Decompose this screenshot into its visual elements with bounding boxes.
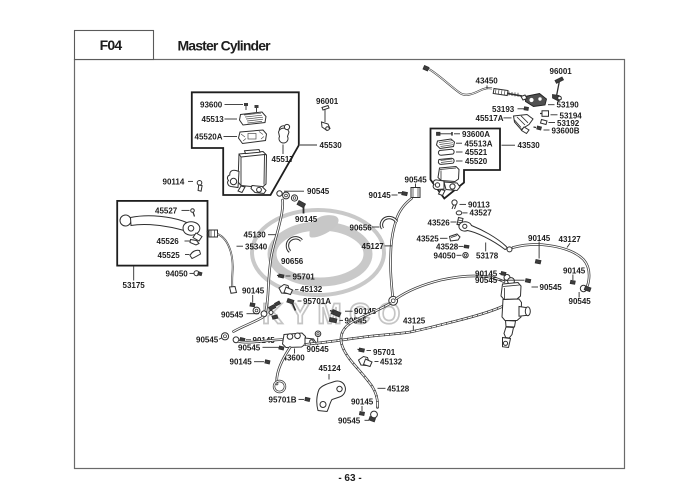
svg-text:43530: 43530 — [518, 141, 541, 150]
svg-text:35340: 35340 — [245, 242, 268, 251]
svg-text:90545: 90545 — [475, 276, 498, 285]
svg-text:- 63 -: - 63 - — [338, 473, 361, 484]
svg-text:90545: 90545 — [569, 297, 592, 306]
svg-text:93600: 93600 — [200, 100, 223, 109]
svg-text:90656: 90656 — [281, 257, 304, 266]
svg-text:94050: 94050 — [166, 270, 189, 279]
svg-text:53175: 53175 — [123, 281, 146, 290]
svg-text:90545: 90545 — [405, 175, 428, 184]
svg-text:93600A: 93600A — [462, 130, 490, 139]
svg-text:45128: 45128 — [387, 384, 410, 393]
svg-text:90145: 90145 — [230, 358, 253, 367]
svg-text:F04: F04 — [100, 37, 123, 53]
svg-text:45513: 45513 — [202, 115, 225, 124]
svg-text:43526: 43526 — [428, 218, 451, 227]
svg-text:43528: 43528 — [436, 243, 459, 252]
svg-text:95701: 95701 — [293, 273, 316, 282]
svg-text:Master Cylinder: Master Cylinder — [178, 38, 272, 54]
svg-text:45520A: 45520A — [195, 132, 223, 141]
svg-text:43450: 43450 — [476, 77, 499, 86]
svg-text:90145: 90145 — [351, 398, 374, 407]
svg-text:53193: 53193 — [492, 105, 515, 114]
svg-text:95701: 95701 — [373, 348, 396, 357]
svg-text:90545: 90545 — [238, 343, 261, 352]
svg-text:90145: 90145 — [563, 267, 586, 276]
svg-text:45132: 45132 — [300, 285, 323, 294]
svg-text:95701B: 95701B — [269, 395, 297, 404]
svg-text:43125: 43125 — [403, 317, 426, 326]
svg-text:90545: 90545 — [196, 335, 219, 344]
svg-text:45127: 45127 — [362, 242, 385, 251]
svg-text:45520: 45520 — [465, 157, 488, 166]
svg-text:90114: 90114 — [163, 177, 185, 186]
svg-text:45526: 45526 — [157, 237, 180, 246]
svg-text:45527: 45527 — [155, 206, 178, 215]
svg-text:43127: 43127 — [559, 235, 582, 244]
svg-text:45517: 45517 — [272, 155, 295, 164]
svg-text:96001: 96001 — [550, 67, 573, 76]
svg-text:90656: 90656 — [350, 223, 373, 232]
svg-text:90145: 90145 — [295, 215, 318, 224]
svg-text:53190: 53190 — [557, 101, 580, 110]
svg-text:90545: 90545 — [221, 311, 244, 320]
svg-text:95701A: 95701A — [303, 297, 331, 306]
svg-text:45124: 45124 — [319, 364, 342, 373]
svg-text:45132: 45132 — [380, 358, 403, 367]
svg-text:45525: 45525 — [158, 251, 181, 260]
svg-text:90145: 90145 — [369, 191, 392, 200]
svg-text:94050: 94050 — [434, 252, 457, 261]
svg-text:93600B: 93600B — [552, 126, 580, 135]
svg-text:45130: 45130 — [244, 231, 267, 240]
svg-text:53178: 53178 — [476, 252, 499, 261]
svg-text:43527: 43527 — [470, 209, 493, 218]
svg-text:90545: 90545 — [540, 283, 563, 292]
svg-text:45517A: 45517A — [476, 114, 504, 123]
svg-text:90545: 90545 — [307, 187, 330, 196]
svg-text:45530: 45530 — [320, 141, 343, 150]
svg-text:90545: 90545 — [307, 345, 330, 354]
svg-text:96001: 96001 — [316, 97, 339, 106]
svg-text:90545: 90545 — [338, 416, 361, 425]
svg-text:45513A: 45513A — [465, 139, 493, 148]
svg-text:90145: 90145 — [242, 286, 265, 295]
svg-text:45521: 45521 — [465, 148, 488, 157]
svg-text:90145: 90145 — [528, 234, 551, 243]
